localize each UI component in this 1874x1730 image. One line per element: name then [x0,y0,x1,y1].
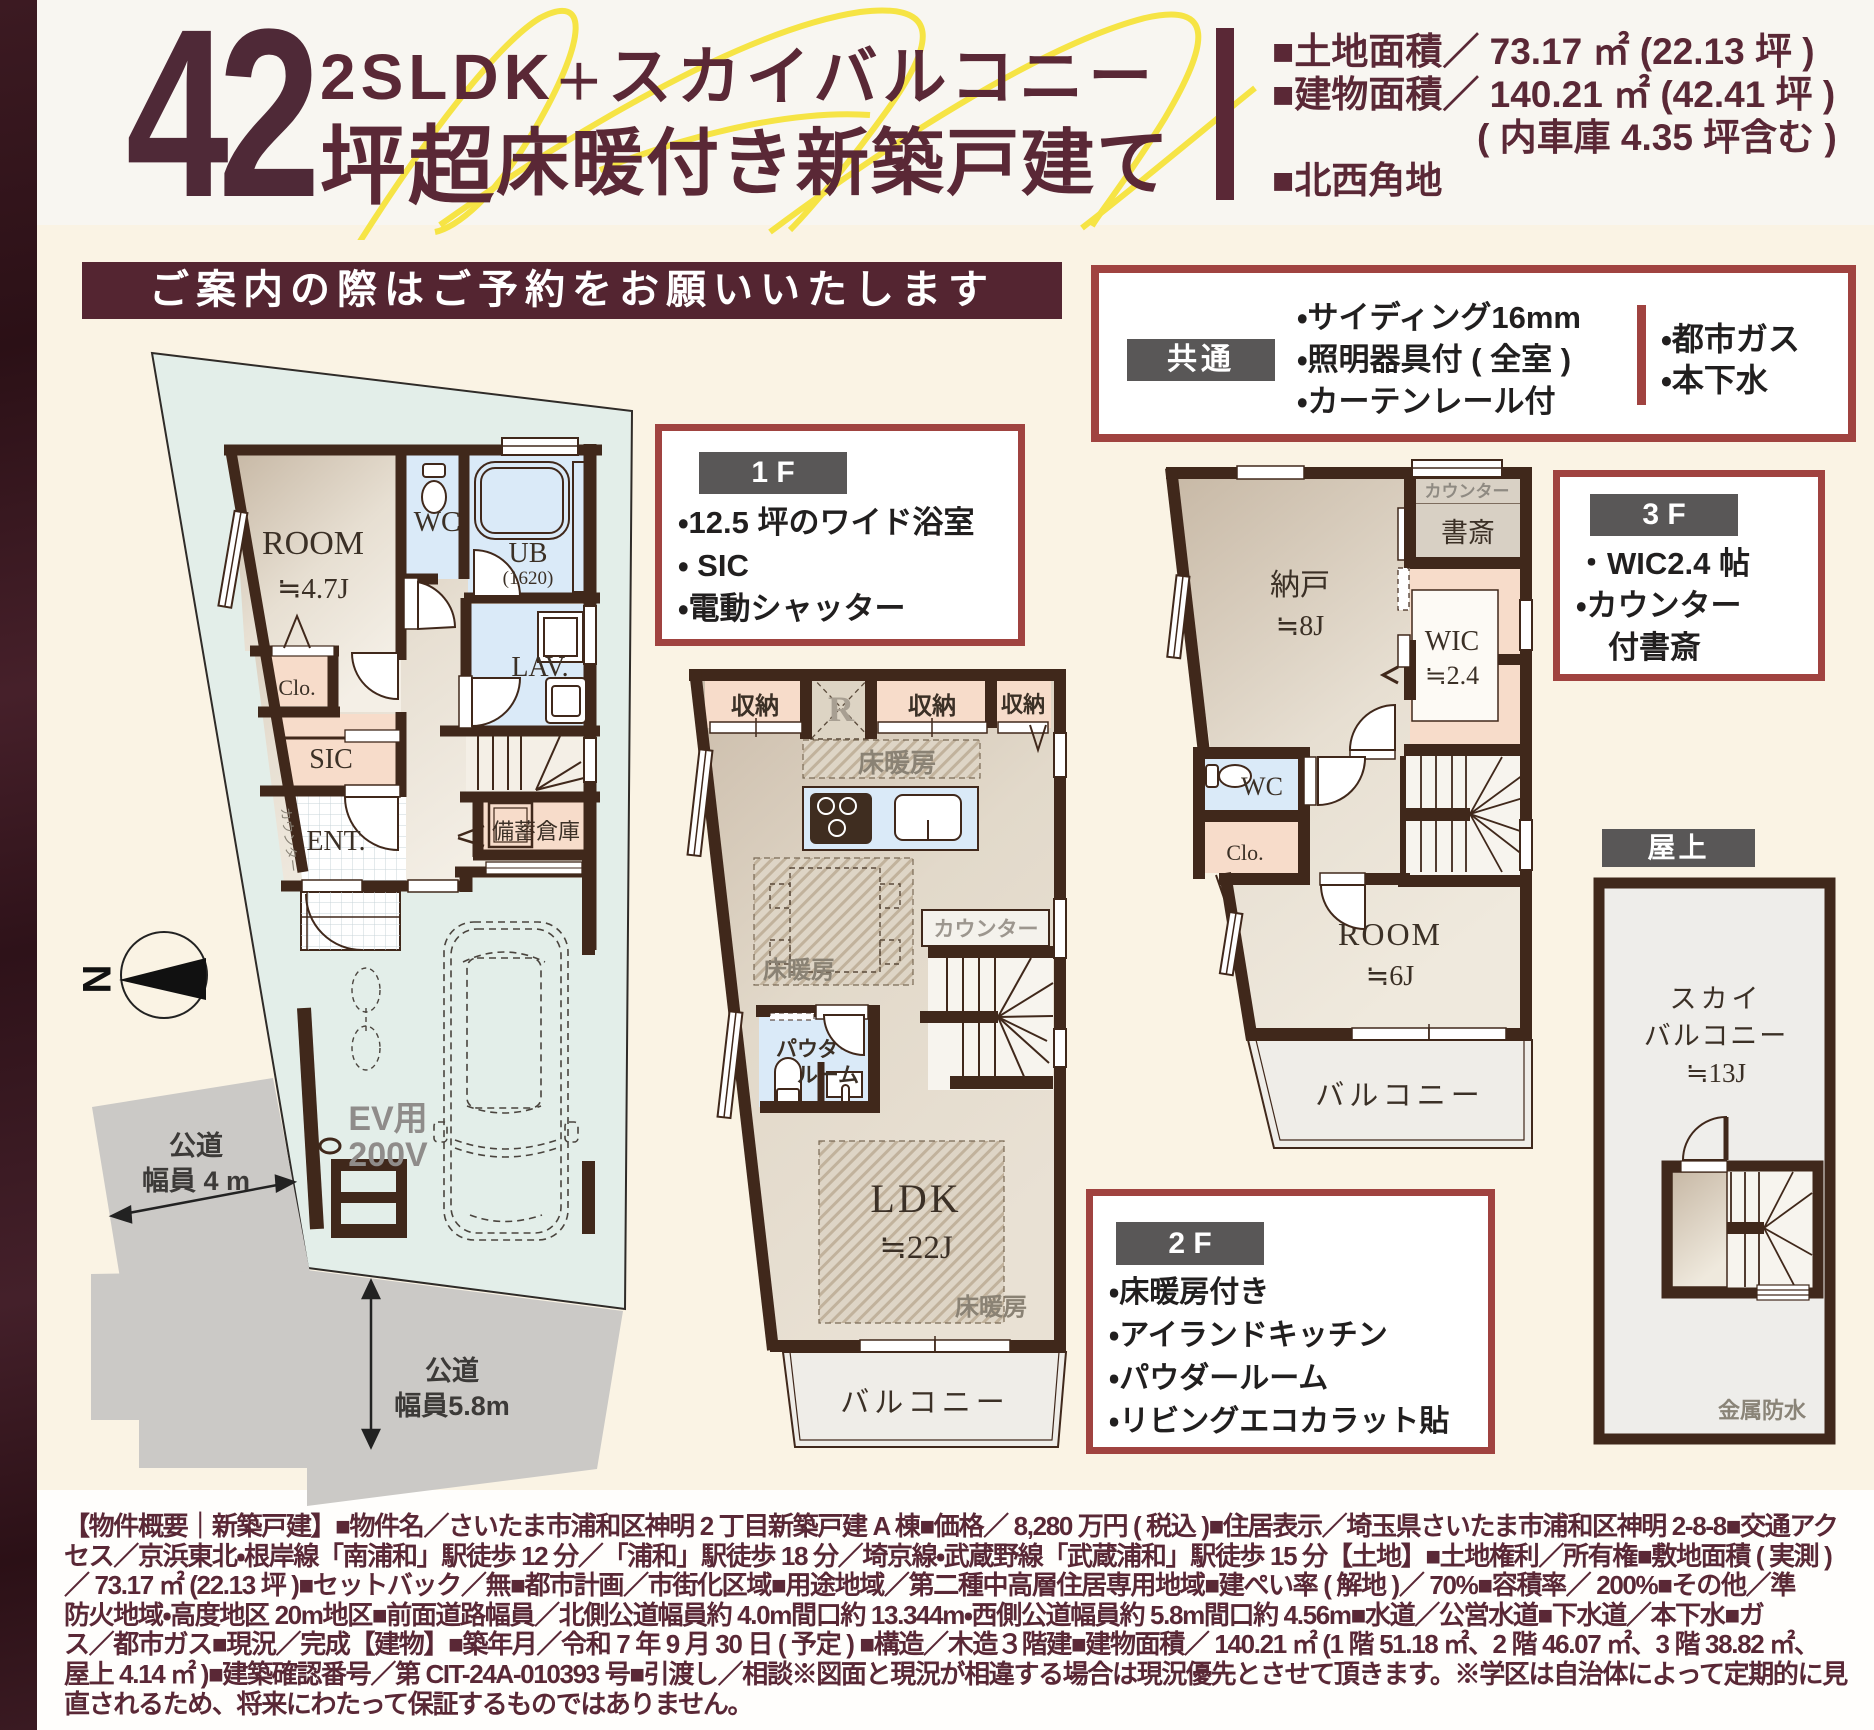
svg-text:床暖房: 床暖房 [763,957,835,984]
svg-text:WC: WC [1241,772,1283,801]
svg-text:≒22J: ≒22J [879,1230,953,1266]
svg-text:カウンター: カウンター [1425,482,1510,501]
svg-text:カウンター: カウンター [934,918,1039,941]
svg-text:≒8J: ≒8J [1276,611,1324,642]
svg-text:≒13J: ≒13J [1686,1058,1746,1088]
svg-text:WIC: WIC [1425,626,1479,657]
svg-text:ENT.: ENT. [306,826,365,857]
svg-text:Clo.: Clo. [1226,840,1263,865]
svg-text:公道: 公道 [169,1131,223,1161]
svg-text:床暖房: 床暖房 [955,1294,1027,1321]
svg-text:LAV.: LAV. [511,652,568,683]
svg-text:R: R [828,689,855,729]
svg-text:WC: WC [414,506,461,538]
svg-text:スカイ: スカイ [1670,984,1763,1014]
svg-text:収納: 収納 [1001,692,1045,717]
svg-text:UB: UB [509,538,548,569]
svg-text:収納: 収納 [731,692,779,720]
svg-text:200V: 200V [348,1136,428,1174]
svg-text:書斎: 書斎 [1441,518,1495,548]
svg-text:幅員 4 m: 幅員 4 m [142,1166,250,1196]
svg-text:ROOM: ROOM [262,525,364,562]
svg-text:SIC: SIC [309,744,353,775]
svg-text:納戸: 納戸 [1270,569,1330,602]
svg-text:幅員5.8m: 幅員5.8m [394,1391,510,1421]
svg-text:LDK: LDK [870,1176,961,1221]
svg-text:≒4.7J: ≒4.7J [277,573,349,605]
svg-text:≒6J: ≒6J [1366,961,1414,992]
svg-text:ルーム: ルーム [797,1064,859,1087]
svg-text:収納: 収納 [908,692,956,720]
svg-text:備蓄倉庫: 備蓄倉庫 [492,819,580,844]
svg-text:N: N [76,965,120,994]
svg-text:バルコニー: バルコニー [840,1387,1009,1419]
svg-text:(1620): (1620) [503,568,554,589]
svg-text:EV用: EV用 [348,1100,427,1138]
svg-text:≒2.4: ≒2.4 [1425,661,1479,690]
svg-text:金属防水: 金属防水 [1718,1398,1807,1423]
svg-text:バルコニー: バルコニー [1315,1080,1484,1112]
svg-text:床暖房: 床暖房 [858,748,936,778]
svg-text:公道: 公道 [425,1356,479,1386]
svg-text:バルコニー: バルコニー [1644,1021,1788,1051]
svg-text:Clo.: Clo. [278,675,315,700]
